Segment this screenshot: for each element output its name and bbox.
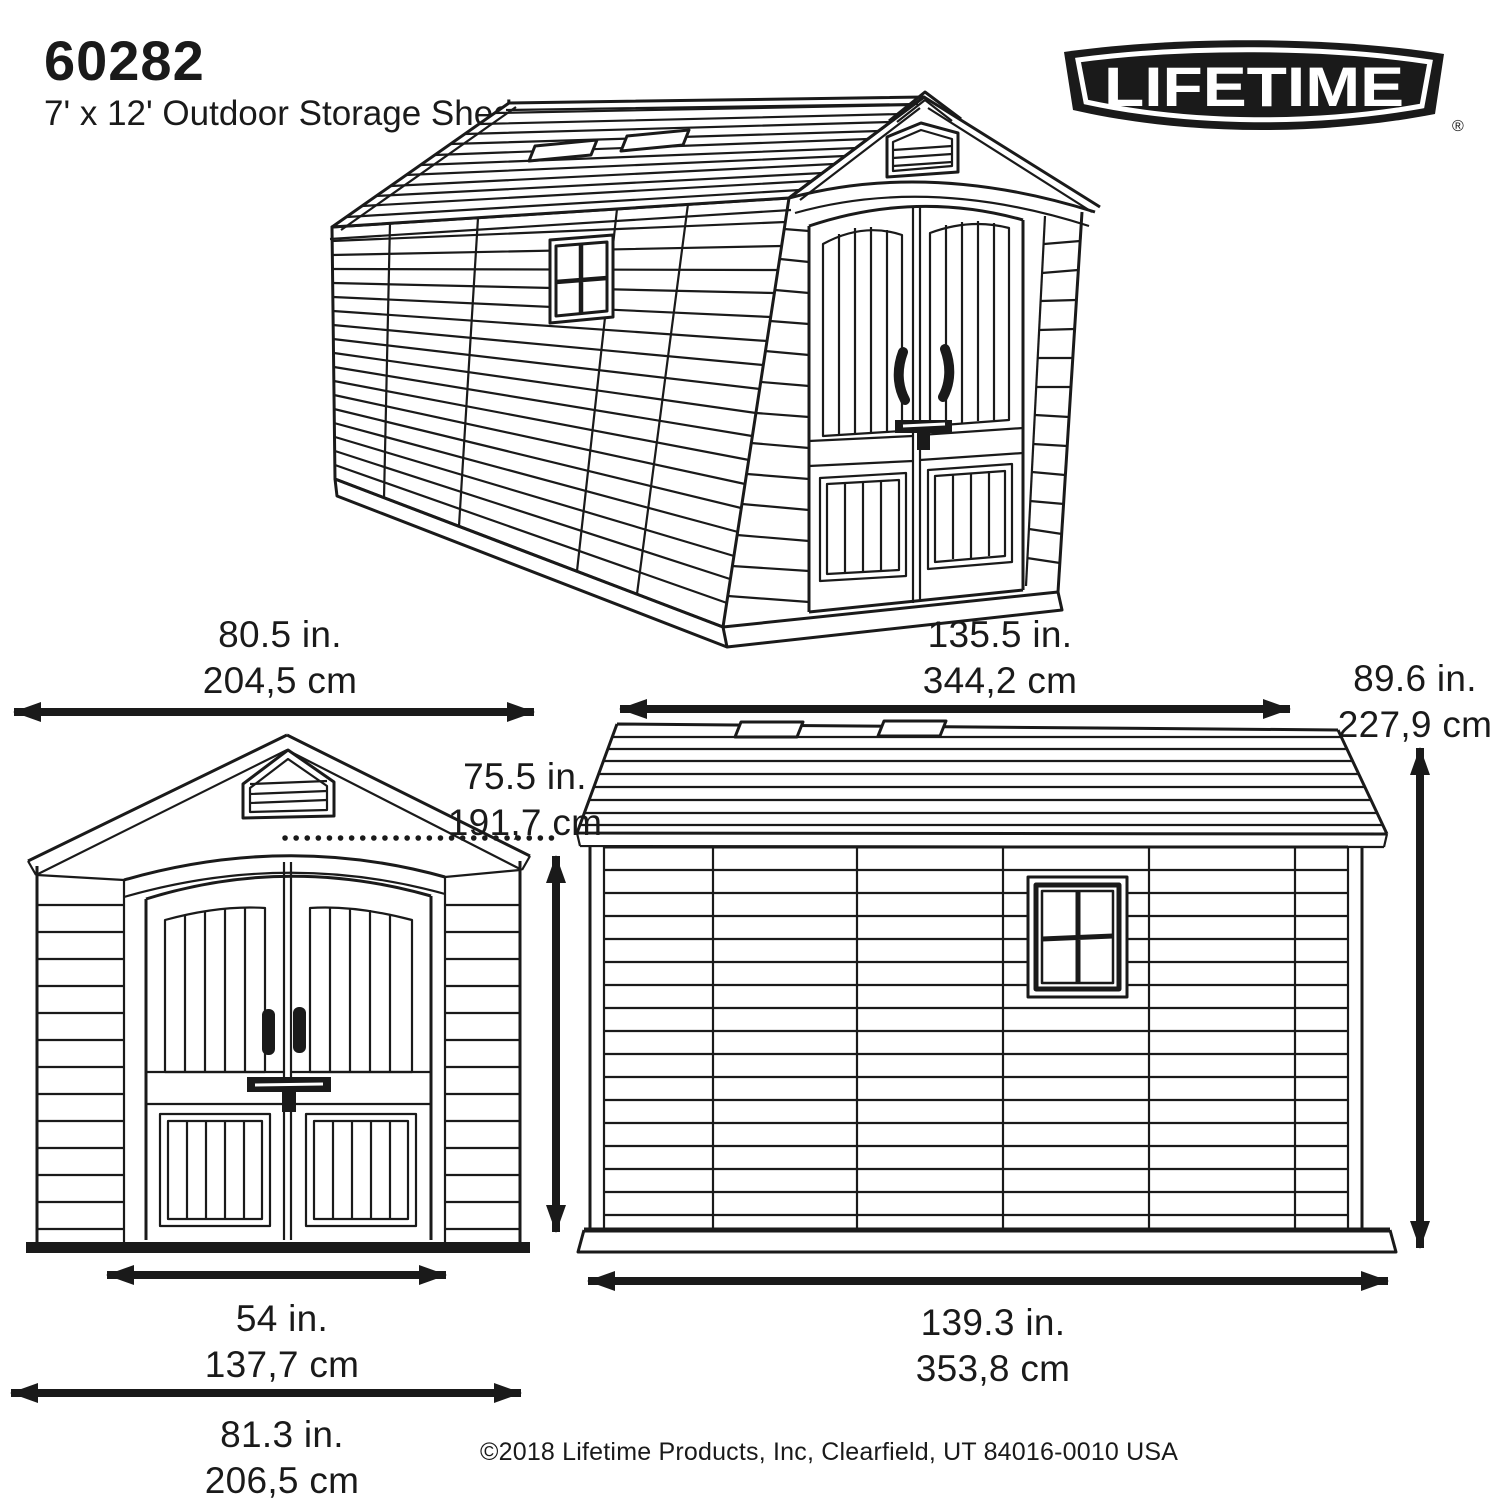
door-handle-right-icon	[293, 1007, 306, 1053]
side-siding-rows	[604, 847, 1348, 1230]
gable-vent-iso	[887, 123, 958, 177]
front-siding-left	[37, 905, 124, 1229]
side-window-iso	[550, 235, 613, 323]
door-handle-left-icon	[262, 1009, 275, 1055]
front-corner-trim-left	[728, 229, 809, 602]
side-roof-lines	[580, 737, 1383, 825]
spec-sheet: 60282 7' x 12' Outdoor Storage Shed LIFE…	[0, 0, 1500, 1500]
dim-length-overall: 135.5 in. 344,2 cm	[875, 612, 1125, 704]
dim-door-opening-width: 54 in. 137,7 cm	[157, 1296, 407, 1388]
front-siding-right	[445, 905, 520, 1229]
shed-diagram	[0, 0, 1500, 1500]
front-base	[26, 1242, 530, 1253]
double-doors-front	[146, 862, 431, 1240]
isometric-view	[330, 92, 1100, 647]
dim-height-peak: 89.6 in. 227,9 cm	[1330, 656, 1500, 748]
dim-height-eave: 75.5 in. 191,7 cm	[430, 754, 620, 846]
door-handle-right-icon	[943, 349, 949, 397]
double-doors-iso	[809, 206, 1023, 612]
dim-front-roof-width: 80.5 in. 204,5 cm	[155, 612, 405, 704]
skylights-side	[735, 721, 946, 737]
gable-vent-front	[243, 750, 334, 818]
copyright-line: ©2018 Lifetime Products, Inc, Clearfield…	[480, 1438, 1178, 1467]
side-window	[1028, 877, 1127, 997]
side-elevation-view	[577, 721, 1396, 1252]
dim-side-base-length: 139.3 in. 353,8 cm	[868, 1300, 1118, 1392]
door-handle-left-icon	[899, 352, 905, 400]
dim-front-base-width: 81.3 in. 206,5 cm	[157, 1412, 407, 1500]
